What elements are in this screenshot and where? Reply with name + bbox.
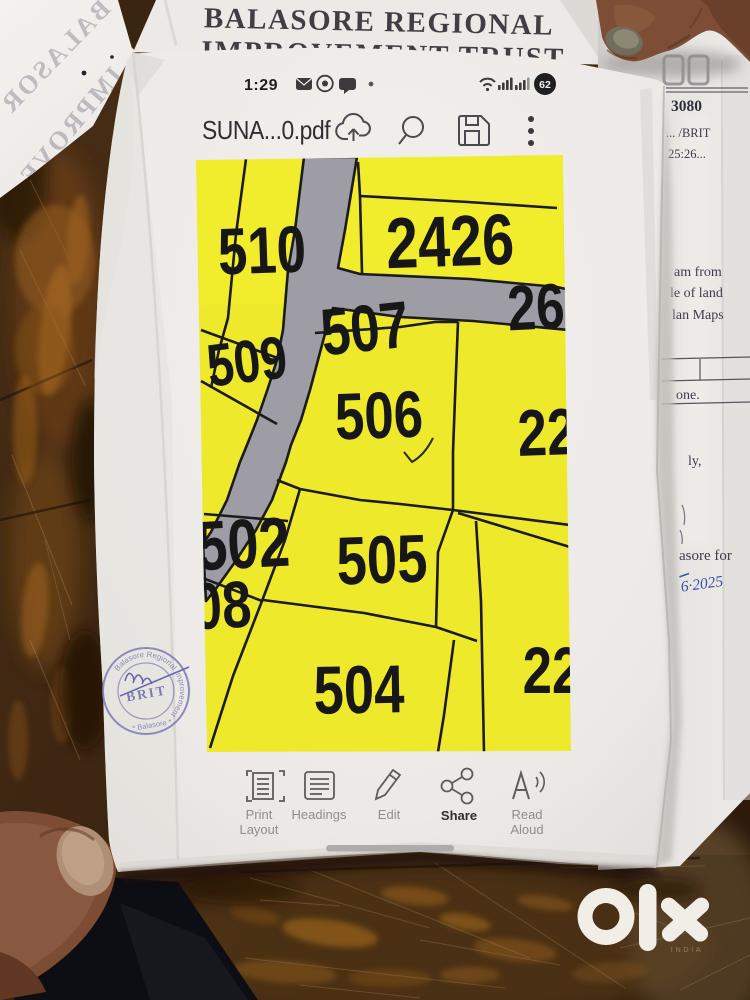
- svg-text:25:26...: 25:26...: [668, 147, 706, 161]
- svg-text:Read: Read: [511, 807, 542, 822]
- svg-text:3080: 3080: [671, 98, 702, 115]
- svg-text:am from: am from: [674, 265, 722, 280]
- svg-text:Edit: Edit: [378, 807, 401, 822]
- svg-text:asore for: asore for: [679, 548, 732, 564]
- svg-text:507: 507: [317, 287, 412, 370]
- svg-text:62: 62: [539, 79, 551, 91]
- svg-text:1:29: 1:29: [244, 77, 278, 94]
- svg-text:2426: 2426: [385, 199, 516, 284]
- svg-text:INDIA: INDIA: [671, 945, 704, 954]
- svg-text:one.: one.: [676, 388, 700, 403]
- svg-text:Share: Share: [441, 808, 477, 823]
- svg-text:Headings: Headings: [292, 807, 347, 822]
- svg-text:ly,: ly,: [688, 454, 701, 469]
- svg-text:lan Maps: lan Maps: [672, 308, 724, 323]
- svg-text:Aloud: Aloud: [510, 822, 543, 837]
- svg-text:506: 506: [334, 377, 425, 454]
- svg-text:504: 504: [313, 651, 405, 729]
- svg-text:le of land: le of land: [670, 286, 723, 301]
- svg-text:509: 509: [203, 323, 291, 400]
- svg-text:Print: Print: [246, 807, 273, 822]
- svg-text:26: 26: [506, 271, 567, 345]
- svg-text:505: 505: [335, 521, 428, 600]
- svg-text:... /BRIT: ... /BRIT: [666, 126, 711, 140]
- svg-text:Layout: Layout: [239, 822, 278, 837]
- svg-text:510: 510: [217, 212, 308, 289]
- svg-text:SUNA...0.pdf: SUNA...0.pdf: [202, 117, 331, 146]
